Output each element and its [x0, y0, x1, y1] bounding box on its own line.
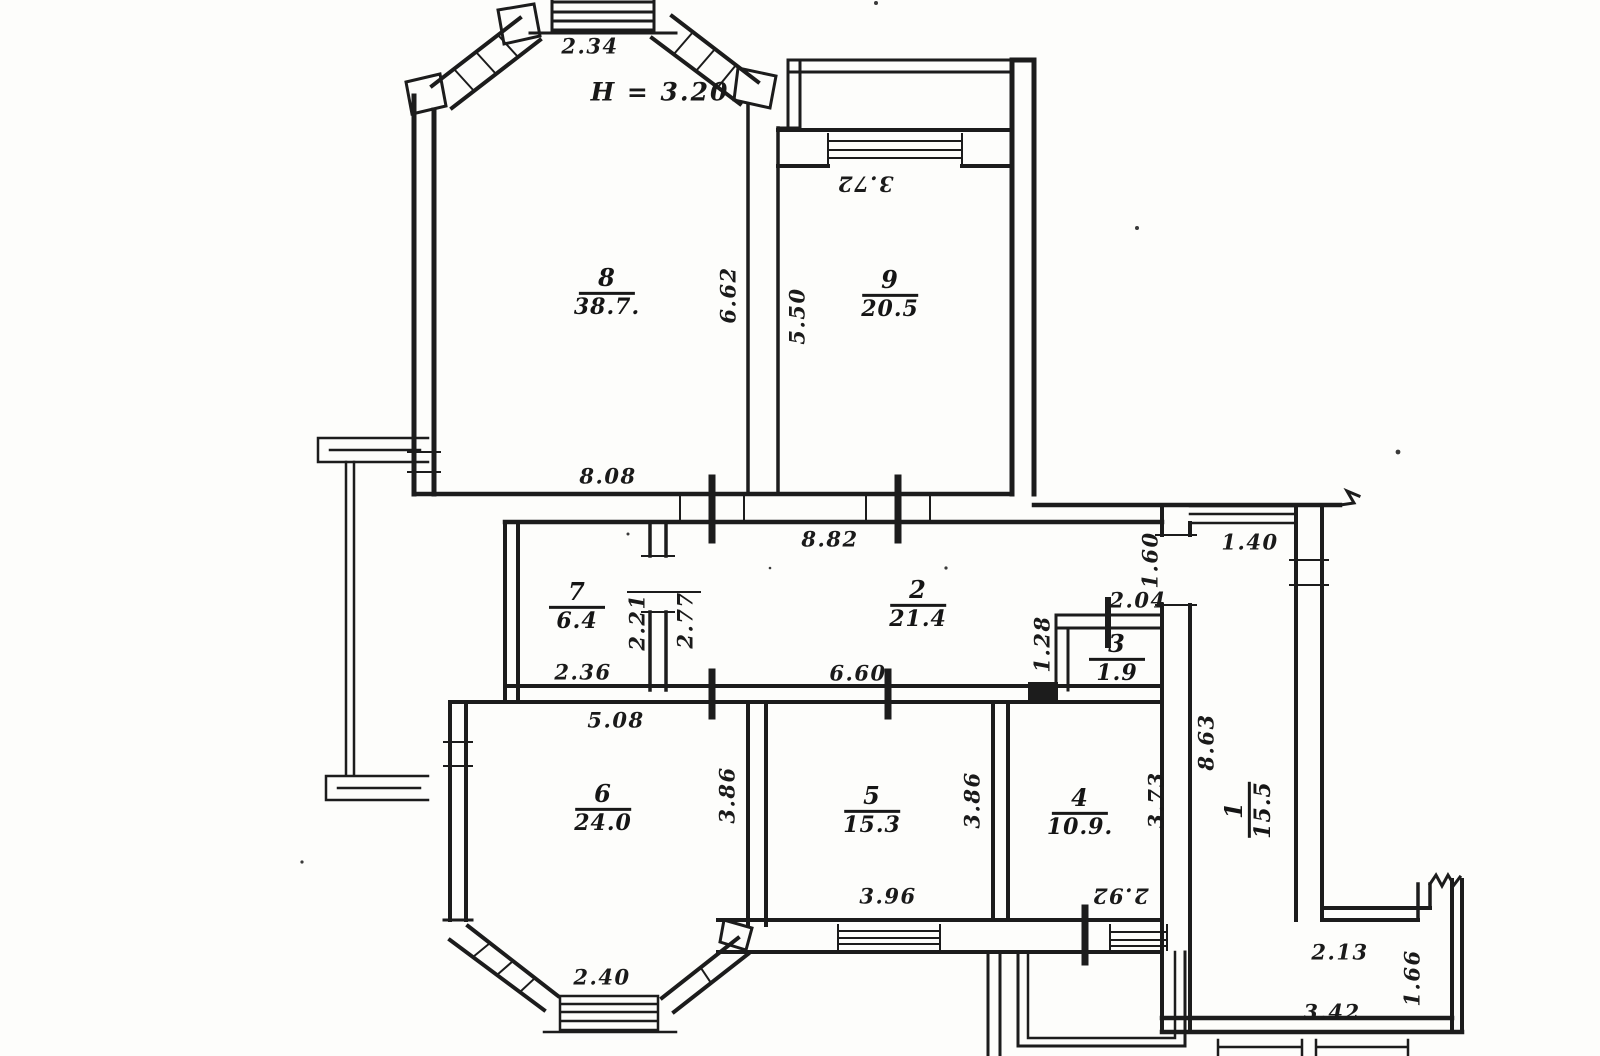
dim-room6-height: 3.86	[715, 766, 740, 823]
dim-hall-bottom: 6.60	[829, 661, 886, 686]
room5-room4-divider	[993, 702, 1008, 920]
dim-room3-width: 2.04	[1109, 588, 1166, 613]
dim-room7-door-right: 2.77	[673, 591, 698, 648]
dim-bay6-window: 2.40	[573, 965, 630, 990]
room9-area: 20.5	[861, 298, 919, 321]
room-label-6: 6 24.0	[574, 781, 632, 835]
room8-area: 38.7.	[574, 296, 640, 319]
room6-area: 24.0	[574, 812, 632, 835]
room1-number: 1	[1221, 801, 1246, 819]
dim-hall-top: 8.82	[801, 527, 858, 552]
room4-number: 4	[1071, 785, 1089, 810]
dim-room9-window: 3.72	[836, 172, 893, 197]
room-label-8: 8 38.7.	[574, 265, 640, 319]
dim-corridor-window: 1.40	[1221, 530, 1278, 555]
room9-number: 9	[881, 267, 899, 292]
dim-vestibule-bottom: 3.42	[1303, 1000, 1360, 1025]
dim-room4-height: 3.73	[1144, 771, 1169, 828]
room2-area: 21.4	[889, 608, 947, 631]
room-label-3: 3 1.9	[1089, 631, 1145, 685]
right-outer-wall-top	[1012, 60, 1034, 494]
room-label-5: 5 15.3	[843, 783, 901, 837]
room-label-7: 7 6.4	[549, 579, 605, 633]
dim-hall-right: 1.60	[1138, 531, 1163, 588]
floor-plan-page: H = 3.20 2.34 3.72 6.62 5.50 8.08 8.82 2…	[0, 0, 1600, 1056]
room7-number: 7	[568, 579, 586, 604]
room6-number: 6	[594, 781, 612, 806]
dim-room8-depth: 6.62	[716, 266, 741, 323]
ceiling-height-label: H = 3.20	[591, 78, 730, 107]
dim-room3-height: 1.28	[1030, 615, 1055, 672]
room-label-9: 9 20.5	[861, 267, 919, 321]
room-label-4: 4 10.9.	[1047, 785, 1113, 839]
dim-room9-depth: 5.50	[785, 287, 810, 344]
room3-number: 3	[1108, 631, 1126, 656]
lower-wall-stub	[988, 952, 1000, 1056]
room9-top-wall	[778, 60, 1034, 166]
room-label-2: 2 21.4	[889, 577, 947, 631]
room8-left-wall	[408, 96, 440, 494]
room5-area: 15.3	[843, 814, 901, 837]
room5-number: 5	[863, 783, 881, 808]
dim-corridor-length: 8.63	[1194, 713, 1219, 770]
room3-area: 1.9	[1096, 662, 1137, 685]
dim-room5-bottom: 3.96	[859, 884, 916, 909]
dim-room7-width: 2.36	[554, 660, 611, 685]
dim-room5-height: 3.86	[960, 771, 985, 828]
floorplan-drawing	[0, 0, 1600, 1056]
room7-area: 6.4	[556, 610, 597, 633]
corridor-walls	[1156, 505, 1328, 1032]
dim-bay8-window: 2.34	[561, 34, 618, 59]
south-wall	[718, 908, 1167, 962]
room1-area: 15.5	[1252, 781, 1275, 839]
dim-room8-width: 8.08	[579, 464, 636, 489]
dim-room4-bottom: 2.92	[1091, 884, 1148, 909]
room4-area: 10.9.	[1047, 816, 1113, 839]
room8-number: 8	[598, 265, 616, 290]
dim-room7-door-left: 2.21	[625, 593, 650, 650]
dim-vestibule-right: 1.66	[1400, 949, 1425, 1006]
room8-room9-divider-wall	[748, 104, 778, 494]
room2-number: 2	[909, 577, 927, 602]
room-label-1: 1 15.5	[1221, 781, 1275, 839]
dim-vestibule-top: 2.13	[1311, 940, 1368, 965]
dim-room6-top: 5.08	[587, 708, 644, 733]
main-horizontal-wall	[414, 478, 1359, 540]
